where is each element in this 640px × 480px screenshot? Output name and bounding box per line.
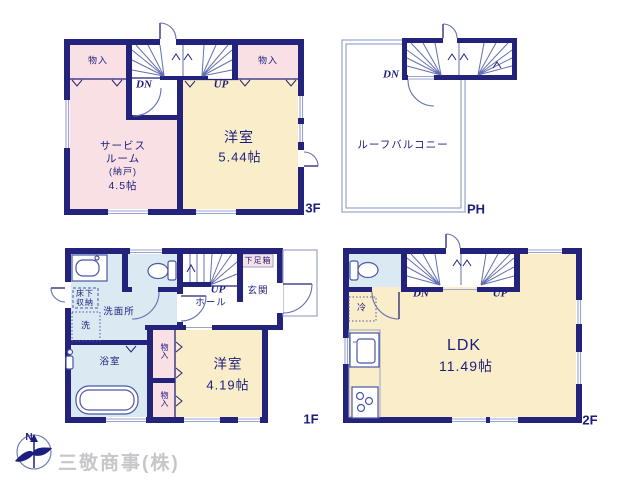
compass-north-label: N bbox=[25, 432, 32, 443]
floor-1f-graphics bbox=[51, 248, 317, 423]
label-2f-up: UP bbox=[493, 289, 508, 300]
floor-tag-3f: 3F bbox=[305, 202, 320, 215]
label-1f-closet-upper: 物入 bbox=[160, 343, 168, 359]
label-roof-balcony: ルーフバルコニー bbox=[357, 140, 448, 151]
floor-tag-2f: 2F bbox=[582, 414, 597, 427]
label-1f-washer: 洗 bbox=[81, 322, 91, 331]
label-2f-dn: DN bbox=[413, 289, 429, 300]
label-3f-up: UP bbox=[214, 80, 229, 91]
label-1f-bathroom: 浴室 bbox=[99, 357, 120, 367]
bathtub bbox=[76, 386, 138, 414]
floor-ph-graphics bbox=[342, 24, 517, 212]
label-3f-closet-left: 物入 bbox=[88, 57, 108, 66]
label-ph-dn: DN bbox=[383, 70, 399, 81]
floor-3f-stairs bbox=[132, 45, 232, 76]
stove bbox=[352, 387, 378, 418]
label-1f-washroom: 洗面所 bbox=[103, 307, 135, 317]
kitchen-sink bbox=[350, 333, 379, 367]
label-3f-service-room-3: (納戸) bbox=[109, 168, 137, 177]
label-1f-up: UP bbox=[211, 285, 226, 296]
floor-ph-stairs bbox=[402, 38, 517, 80]
label-3f-western-room: 洋室 bbox=[224, 130, 254, 144]
label-1f-shoe-box: 下足箱 bbox=[245, 257, 272, 265]
label-3f-dn: DN bbox=[136, 80, 152, 91]
floor-tag-1f: 1F bbox=[303, 413, 318, 426]
label-2f-ldk: LDK bbox=[447, 338, 481, 354]
label-2f-ldk-size: 11.49帖 bbox=[439, 359, 493, 373]
floorplan-canvas: N 物入 物入 DN UP 洋室 5.44帖 サービス ルーム (納戸) 4.5… bbox=[0, 0, 640, 480]
label-1f-entrance: 玄関 bbox=[247, 286, 268, 296]
label-1f-closet-lower: 物入 bbox=[160, 391, 168, 407]
washbasin bbox=[72, 255, 107, 281]
label-3f-western-room-size: 5.44帖 bbox=[218, 151, 261, 164]
shower-fixture bbox=[66, 350, 73, 370]
label-2f-fridge: 冷 bbox=[357, 304, 367, 313]
label-3f-closet-right: 物入 bbox=[258, 57, 278, 66]
label-3f-service-room-2: ルーム bbox=[106, 154, 140, 165]
label-1f-underfloor-1: 床下 bbox=[76, 290, 94, 298]
label-1f-western-room: 洋室 bbox=[214, 357, 243, 371]
label-1f-hall: ホール bbox=[195, 298, 227, 308]
floor-2f-graphics bbox=[343, 234, 582, 423]
label-1f-western-room-size: 4.19帖 bbox=[206, 379, 249, 392]
floorplan-graphics: N bbox=[0, 0, 640, 480]
label-3f-service-room-1: サービス bbox=[100, 141, 146, 152]
floor-1f-stairs bbox=[183, 254, 237, 287]
compass: N bbox=[15, 432, 52, 469]
floor-tag-ph: PH bbox=[467, 203, 485, 216]
label-1f-underfloor-2: 収納 bbox=[76, 299, 94, 307]
floor-3f-graphics bbox=[64, 23, 318, 215]
label-3f-service-room-size: 4.5帖 bbox=[108, 181, 137, 192]
company-watermark: 三敬商事(株) bbox=[58, 448, 180, 475]
